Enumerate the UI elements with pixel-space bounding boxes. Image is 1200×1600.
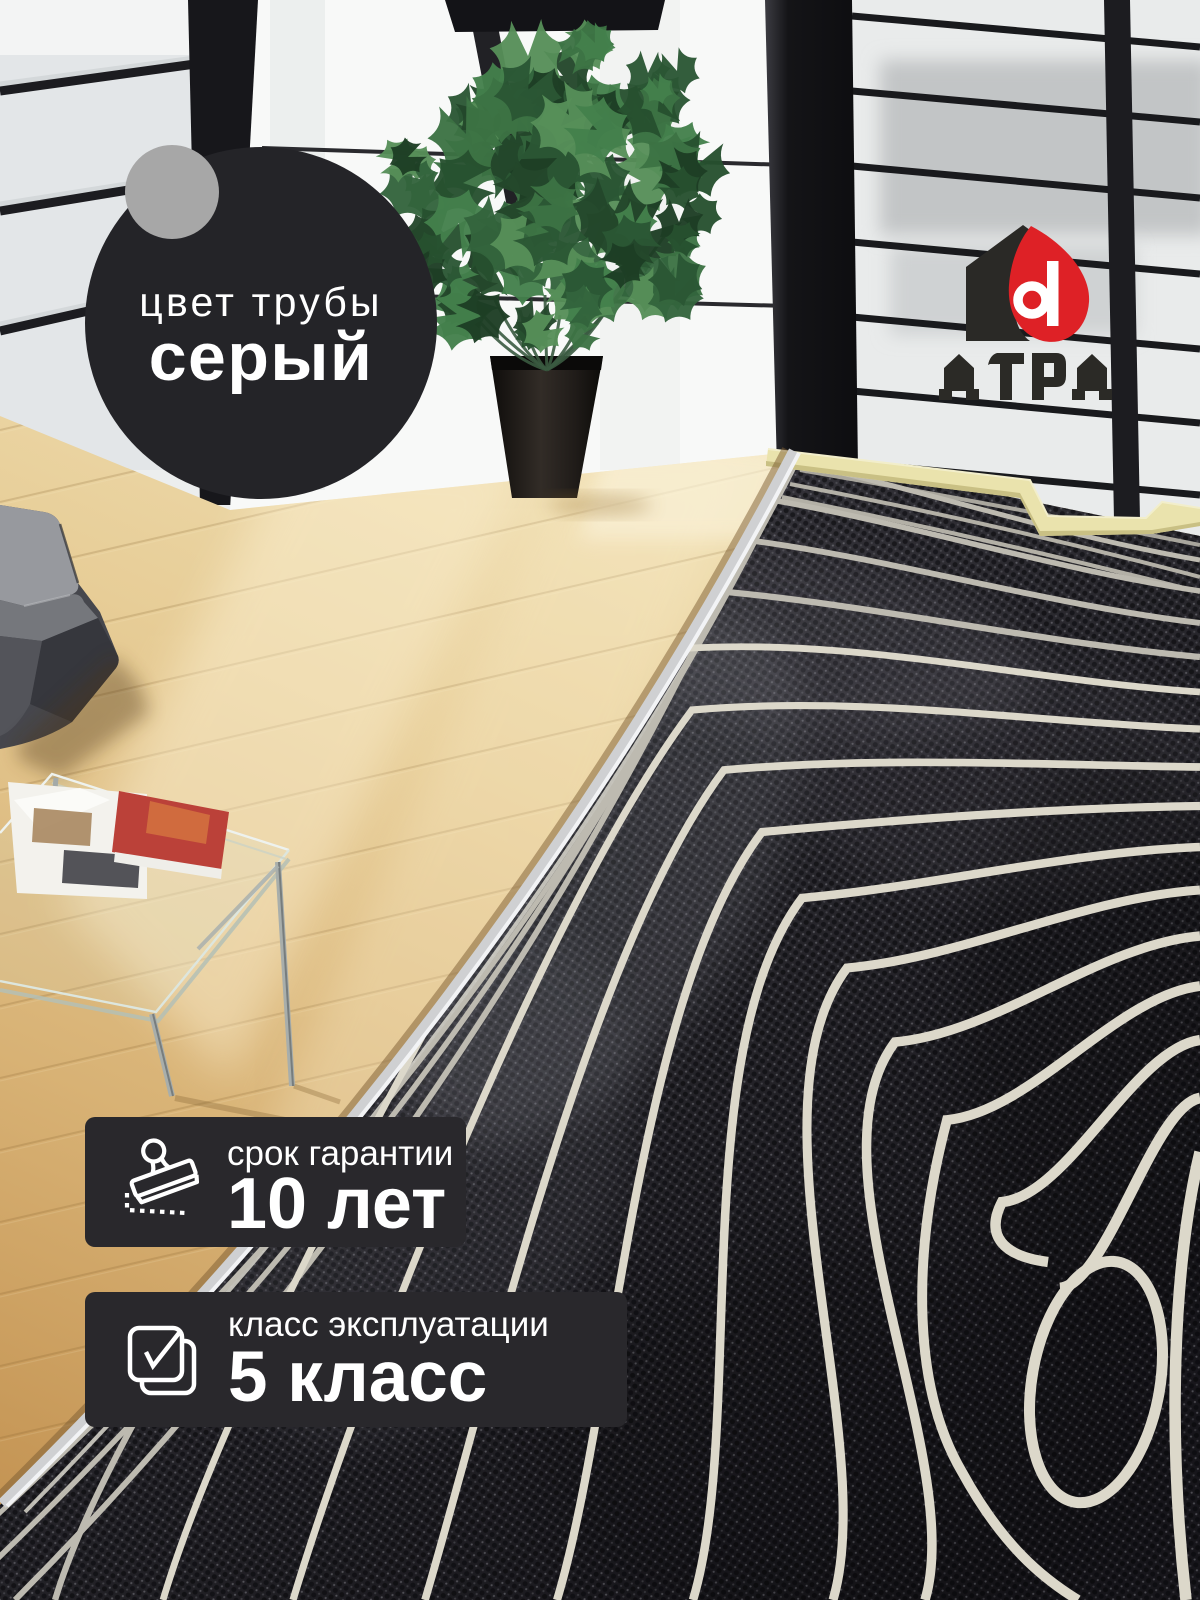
svg-text:10 лет: 10 лет (227, 1164, 446, 1244)
svg-text:5 класс: 5 класс (228, 1338, 487, 1417)
svg-text:серый: серый (149, 319, 374, 395)
